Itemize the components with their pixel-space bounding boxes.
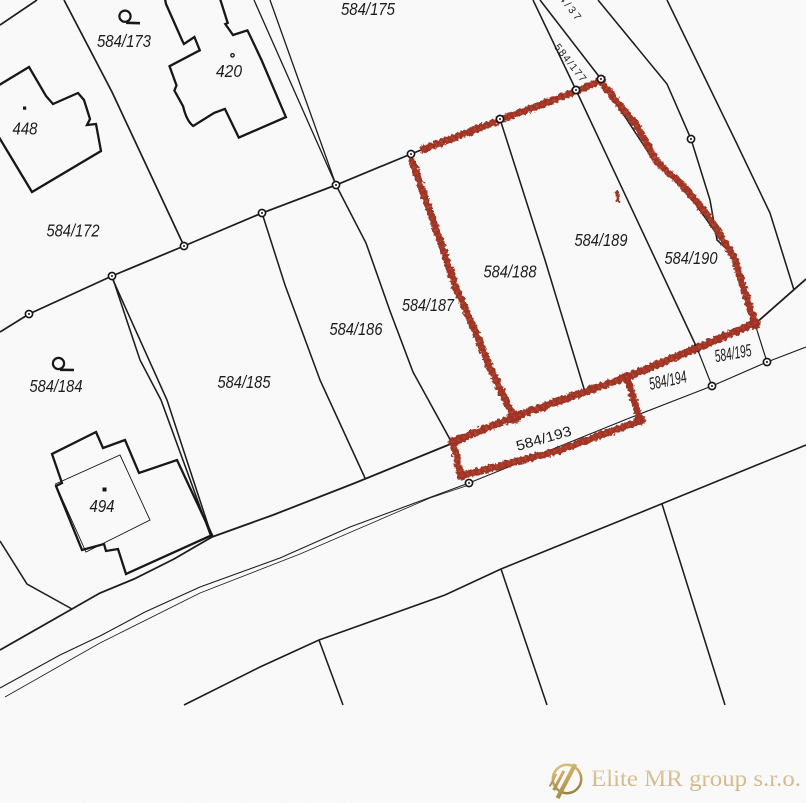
- svg-text:Elite MR group s.r.o.: Elite MR group s.r.o.: [591, 766, 801, 792]
